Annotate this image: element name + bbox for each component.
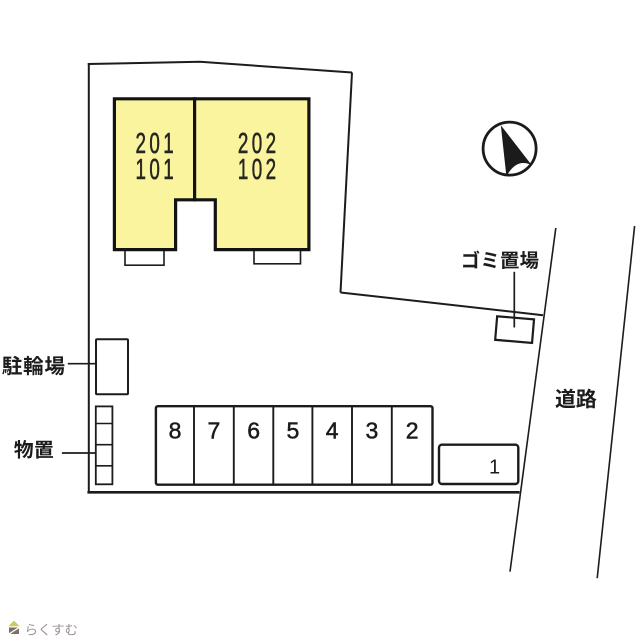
svg-text:3: 3: [366, 418, 379, 444]
svg-text:5: 5: [287, 418, 300, 444]
svg-text:101: 101: [135, 154, 177, 186]
svg-text:4: 4: [326, 418, 339, 444]
svg-text:6: 6: [247, 418, 260, 444]
svg-text:2: 2: [406, 418, 419, 444]
svg-text:8: 8: [169, 418, 182, 444]
svg-text:1: 1: [489, 456, 500, 478]
svg-text:102: 102: [238, 154, 280, 186]
svg-text:7: 7: [208, 418, 221, 444]
